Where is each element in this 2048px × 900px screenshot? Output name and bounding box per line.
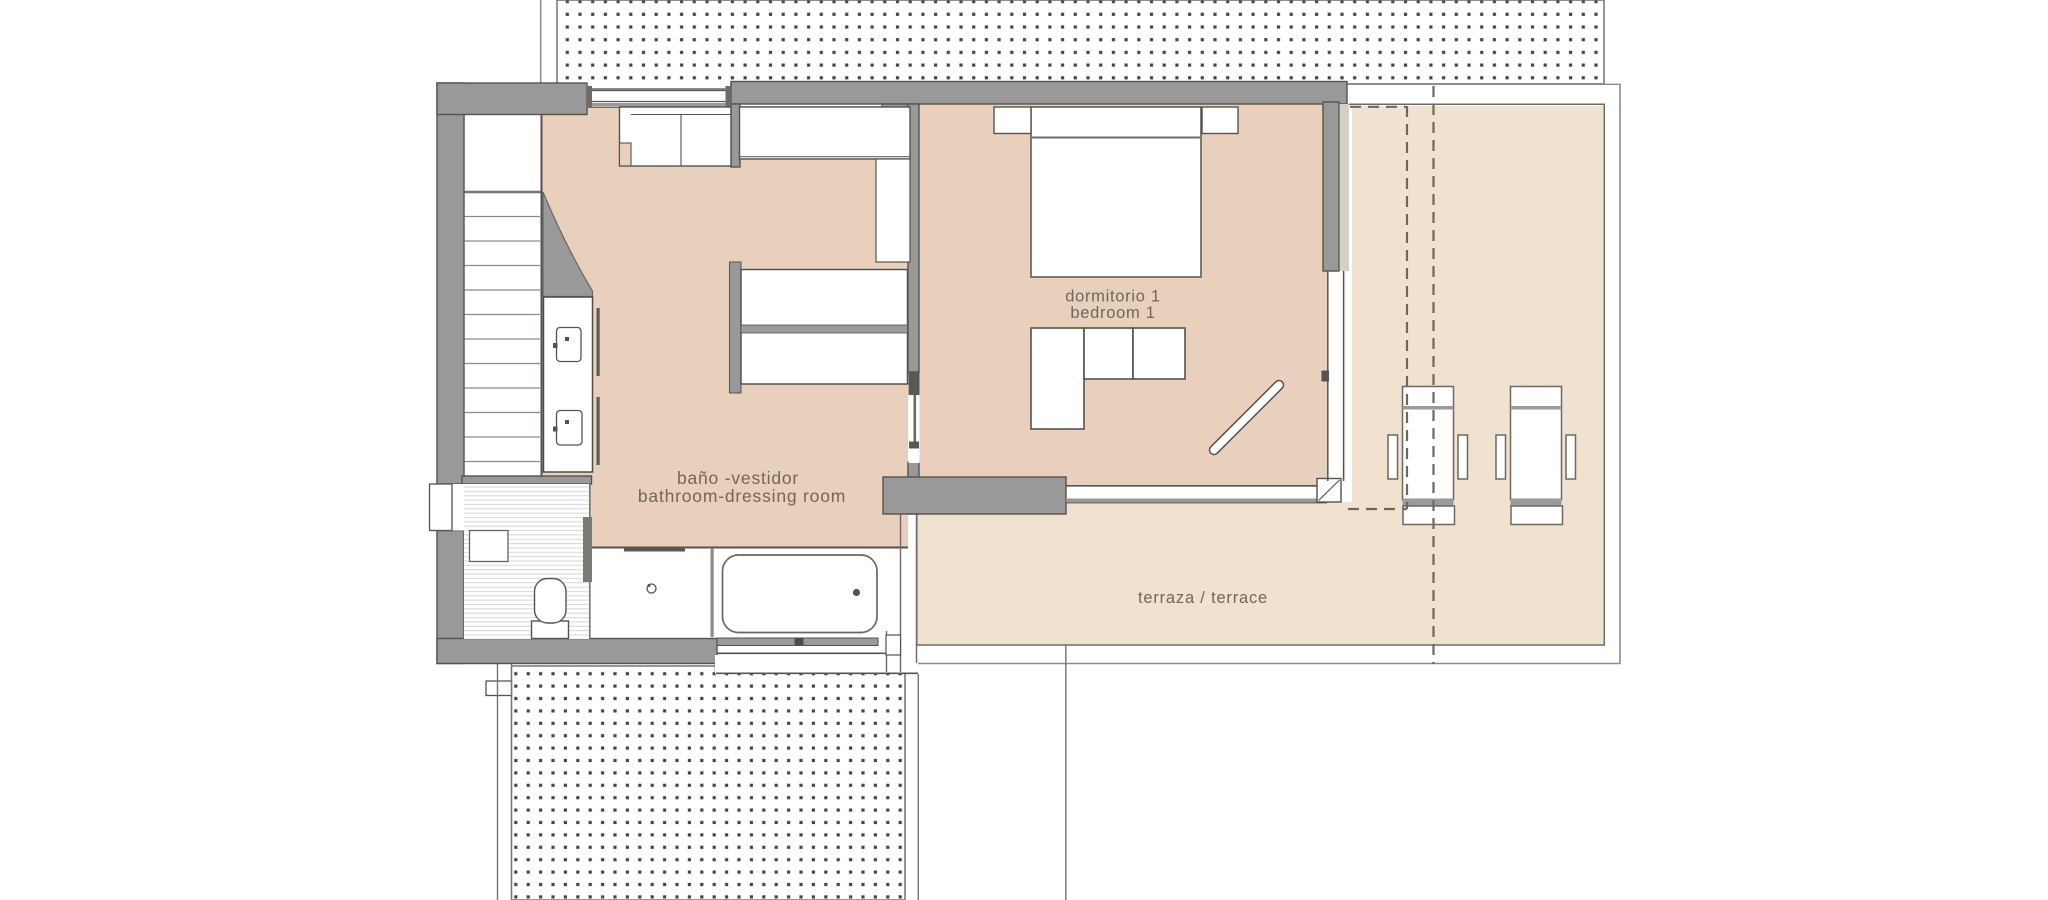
svg-text:dormitorio 1: dormitorio 1 (1065, 288, 1161, 306)
svg-text:bathroom-dressing room: bathroom-dressing room (638, 486, 846, 506)
svg-text:terraza / terrace: terraza / terrace (1138, 589, 1268, 607)
svg-text:baño -vestidor: baño -vestidor (677, 468, 799, 488)
svg-text:bedroom 1: bedroom 1 (1070, 304, 1155, 322)
